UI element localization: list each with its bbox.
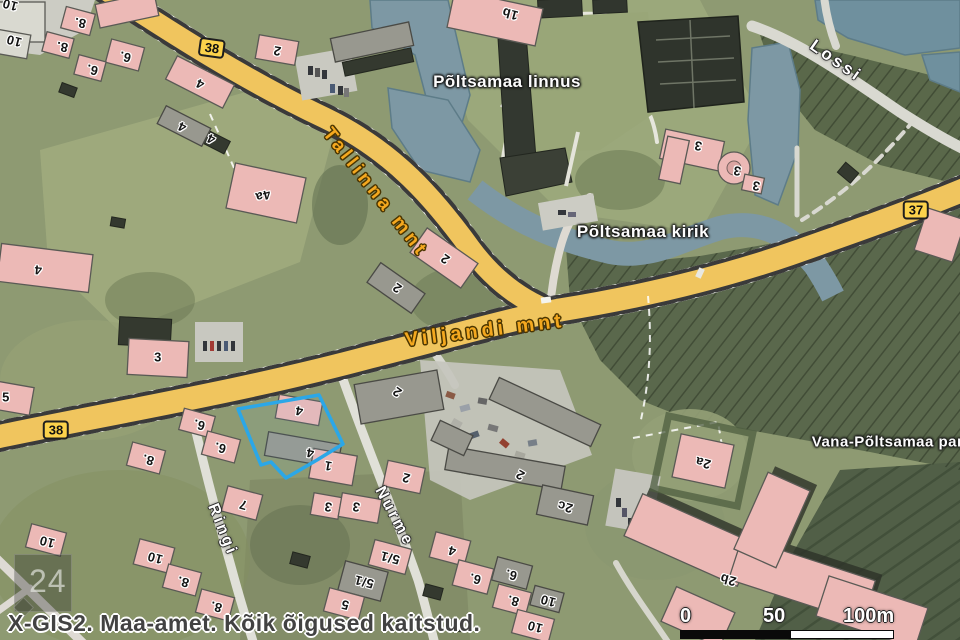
poi-label-park: Vana-Põltsamaa park [812, 434, 960, 451]
map-canvas[interactable]: Tallinna mnt Viljandi mnt Lossi Nurme Ri… [0, 0, 960, 640]
scale-bar-segment-dark [680, 630, 790, 639]
scale-label-100m: 100m [843, 605, 894, 628]
road-badge-38-top: 38 [198, 37, 227, 59]
house-number-label: 5 [2, 390, 10, 405]
road-badge-38-left: 38 [43, 421, 69, 440]
scale-bar-segment-light [790, 630, 894, 639]
scale-label-0: 0 [680, 605, 691, 628]
grid-sheet-number: 24 [29, 563, 67, 600]
poi-label-kirik: Põltsamaa kirik [577, 222, 709, 242]
scale-label-50: 50 [763, 605, 785, 628]
attribution-text: X-GIS2. Maa-amet. Kõik õigused kaitstud. [8, 610, 480, 637]
poi-label-linnus: Põltsamaa linnus [433, 72, 581, 92]
road-badge-37: 37 [903, 201, 929, 220]
house-number-label: 3 [154, 350, 162, 365]
house-number-label: 4 [33, 262, 42, 278]
